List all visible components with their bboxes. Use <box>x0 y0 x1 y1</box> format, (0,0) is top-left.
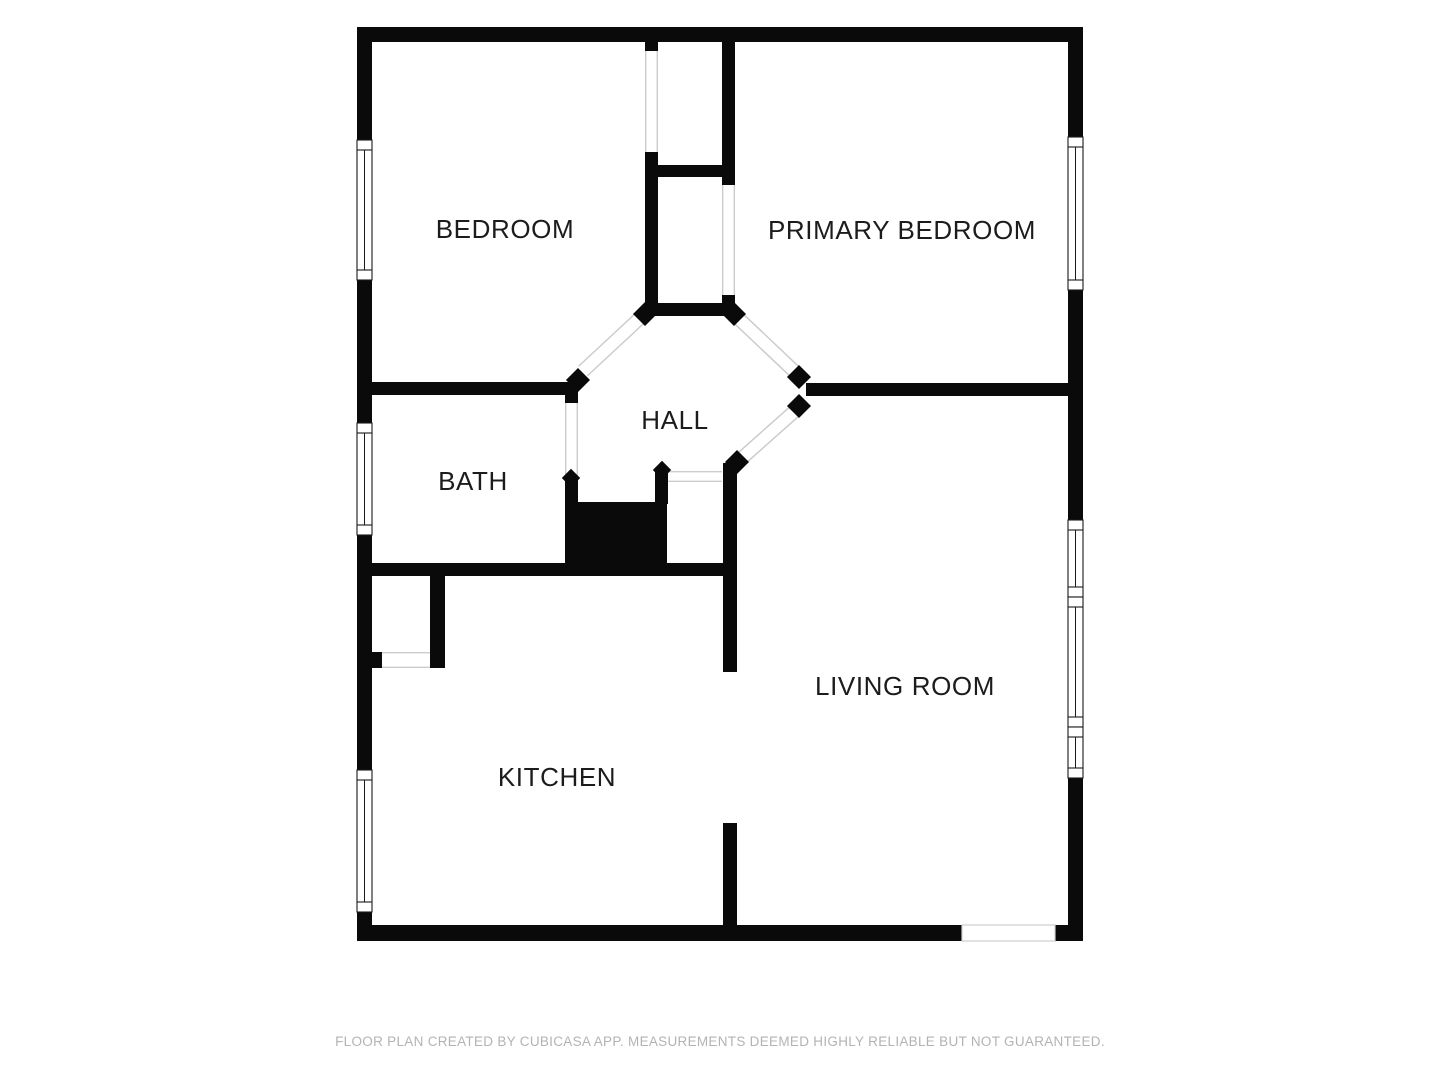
room-label-hall: HALL <box>641 405 708 435</box>
door-jamb <box>787 394 811 418</box>
wall-segment <box>357 27 372 140</box>
wall-segment <box>565 502 667 575</box>
room-label-primary-bedroom: PRIMARY BEDROOM <box>768 215 1036 245</box>
bath-door-opening <box>565 403 578 477</box>
diagonal-doors-layer <box>579 313 801 463</box>
wall-segment <box>1068 778 1083 941</box>
wall-segment <box>1068 27 1083 137</box>
room-label-living-room: LIVING ROOM <box>815 671 995 701</box>
wall-segment <box>645 42 658 51</box>
floor-plan: BEDROOMPRIMARY BEDROOMHALLBATHLIVING ROO… <box>0 0 1440 1080</box>
living-room-door <box>738 405 801 463</box>
primary-bedroom-door <box>734 313 799 375</box>
wall-segment <box>357 925 962 941</box>
wall-segment <box>357 912 372 941</box>
room-label-bath: BATH <box>438 466 508 496</box>
wall-segment <box>1068 290 1083 520</box>
primary-bedroom-closet-door <box>722 185 735 295</box>
wall-segment <box>723 823 737 927</box>
kitchen-window <box>357 770 372 912</box>
kitchen-closet-door <box>382 652 430 668</box>
hall-closet-door <box>668 471 722 482</box>
wall-segment <box>722 42 735 185</box>
bath-door <box>565 403 578 477</box>
wall-segment <box>722 295 735 304</box>
kitchen-closet-door-opening <box>382 652 430 668</box>
wall-segment <box>650 165 722 177</box>
doors-layer <box>382 51 1055 941</box>
bedroom-closet-door <box>645 51 658 152</box>
wall-segment <box>645 303 735 316</box>
living-room-window-2 <box>1068 597 1083 727</box>
wall-segment <box>806 383 1068 396</box>
bath-window <box>357 423 372 535</box>
hall-closet-door-opening <box>668 471 722 482</box>
primary-bedroom-window <box>1068 137 1083 290</box>
wall-segment <box>357 382 578 395</box>
living-room-window-3 <box>1068 727 1083 778</box>
floor-plan-page: BEDROOMPRIMARY BEDROOMHALLBATHLIVING ROO… <box>0 0 1440 1080</box>
room-label-bedroom: BEDROOM <box>436 214 575 244</box>
door-jambs-layer <box>562 302 811 487</box>
wall-segment <box>357 280 372 423</box>
bedroom-closet-door-opening <box>645 51 658 152</box>
bedroom-window <box>357 140 372 280</box>
wall-segment <box>372 652 382 668</box>
wall-segment <box>357 563 737 576</box>
entry-opening <box>962 925 1055 941</box>
footer-disclaimer: FLOOR PLAN CREATED BY CUBICASA APP. MEAS… <box>0 1034 1440 1049</box>
primary-bedroom-closet-door-opening <box>722 185 735 295</box>
wall-segment <box>430 575 445 668</box>
windows-layer <box>357 137 1083 912</box>
room-label-kitchen: KITCHEN <box>498 762 616 792</box>
wall-segment <box>357 27 1083 42</box>
bedroom-door <box>579 313 645 376</box>
living-room-window-1 <box>1068 520 1083 597</box>
